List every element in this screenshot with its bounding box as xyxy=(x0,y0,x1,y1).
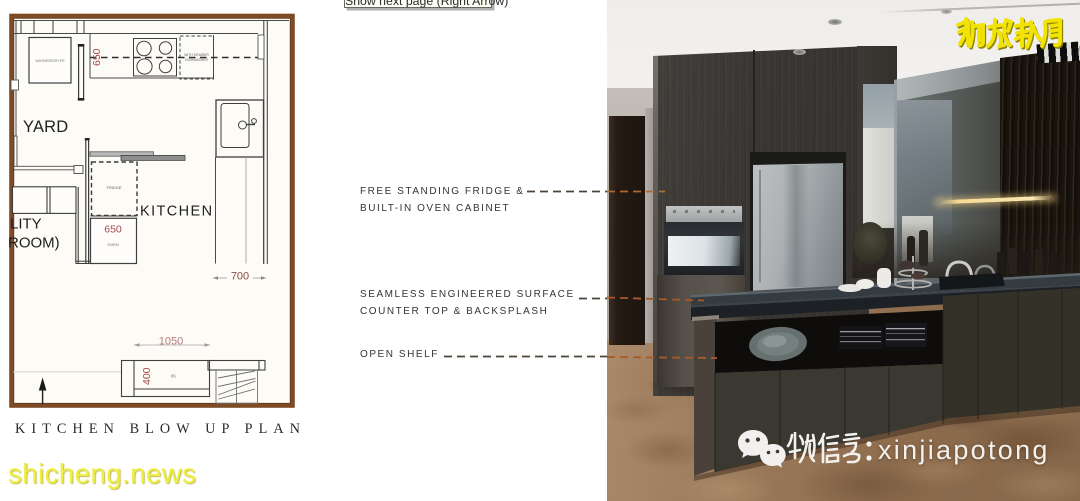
svg-text:ROOM): ROOM) xyxy=(8,235,60,252)
svg-text:KITCHEN BLOW UP PLAN: KITCHEN BLOW UP PLAN xyxy=(15,421,306,437)
svg-text:650: 650 xyxy=(104,224,122,236)
svg-text:700: 700 xyxy=(231,271,249,283)
svg-text:FRIDGE: FRIDGE xyxy=(106,185,121,190)
svg-text:86: 86 xyxy=(171,374,176,379)
svg-text:OVEN: OVEN xyxy=(107,242,118,247)
svg-text:650: 650 xyxy=(91,48,103,66)
svg-text:YARD: YARD xyxy=(23,118,68,136)
svg-text:WITH DRAWER: WITH DRAWER xyxy=(184,53,209,57)
svg-text:DISHWASHER: DISHWASHER xyxy=(185,58,208,62)
svg-text:400: 400 xyxy=(141,367,153,385)
svg-text:LITY: LITY xyxy=(10,216,42,233)
svg-text:1050: 1050 xyxy=(159,336,183,348)
svg-text:KITCHEN: KITCHEN xyxy=(140,204,213,220)
svg-text:WASHER/DRYER: WASHER/DRYER xyxy=(35,59,65,63)
